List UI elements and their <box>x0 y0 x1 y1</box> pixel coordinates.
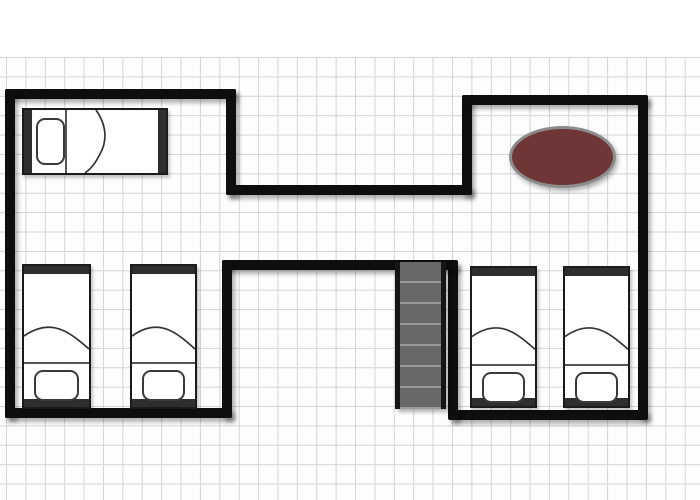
wall-lower-left-right-vertical[interactable] <box>222 260 232 418</box>
pillow-divider-line <box>565 364 628 366</box>
wall-lower-left-bottom[interactable] <box>5 408 232 418</box>
pillow <box>575 372 618 403</box>
staircase[interactable] <box>395 262 446 409</box>
oval-rug[interactable] <box>509 126 616 188</box>
floorplan-canvas <box>0 0 700 500</box>
bed-lower-left-1[interactable] <box>22 264 91 409</box>
pillow <box>34 370 79 401</box>
wall-corridor-top[interactable] <box>226 185 472 195</box>
pillow-divider-line <box>65 110 67 173</box>
pillow-divider-line <box>472 364 535 366</box>
pillow <box>36 118 65 165</box>
bed-upper-left[interactable] <box>22 108 168 175</box>
pillow-divider-line <box>132 362 195 364</box>
pillow <box>482 372 525 403</box>
wall-upper-left-right-vertical[interactable] <box>226 89 236 195</box>
bed-lower-right-2[interactable] <box>563 266 630 408</box>
stair-rail-right <box>441 262 446 409</box>
wall-upper-left-top[interactable] <box>5 89 236 99</box>
wall-upper-right-left-vertical[interactable] <box>462 95 472 195</box>
wall-lower-right-left-vertical[interactable] <box>448 262 458 420</box>
wall-right-exterior[interactable] <box>638 95 648 418</box>
wall-lower-right-bottom[interactable] <box>450 410 648 420</box>
pillow <box>142 370 185 401</box>
bed-lower-left-2[interactable] <box>130 264 197 409</box>
stair-treads <box>400 262 441 409</box>
pillow-divider-line <box>24 362 89 364</box>
bed-lower-right-1[interactable] <box>470 266 537 408</box>
wall-left-exterior[interactable] <box>5 89 15 418</box>
wall-upper-right-top[interactable] <box>462 95 648 105</box>
